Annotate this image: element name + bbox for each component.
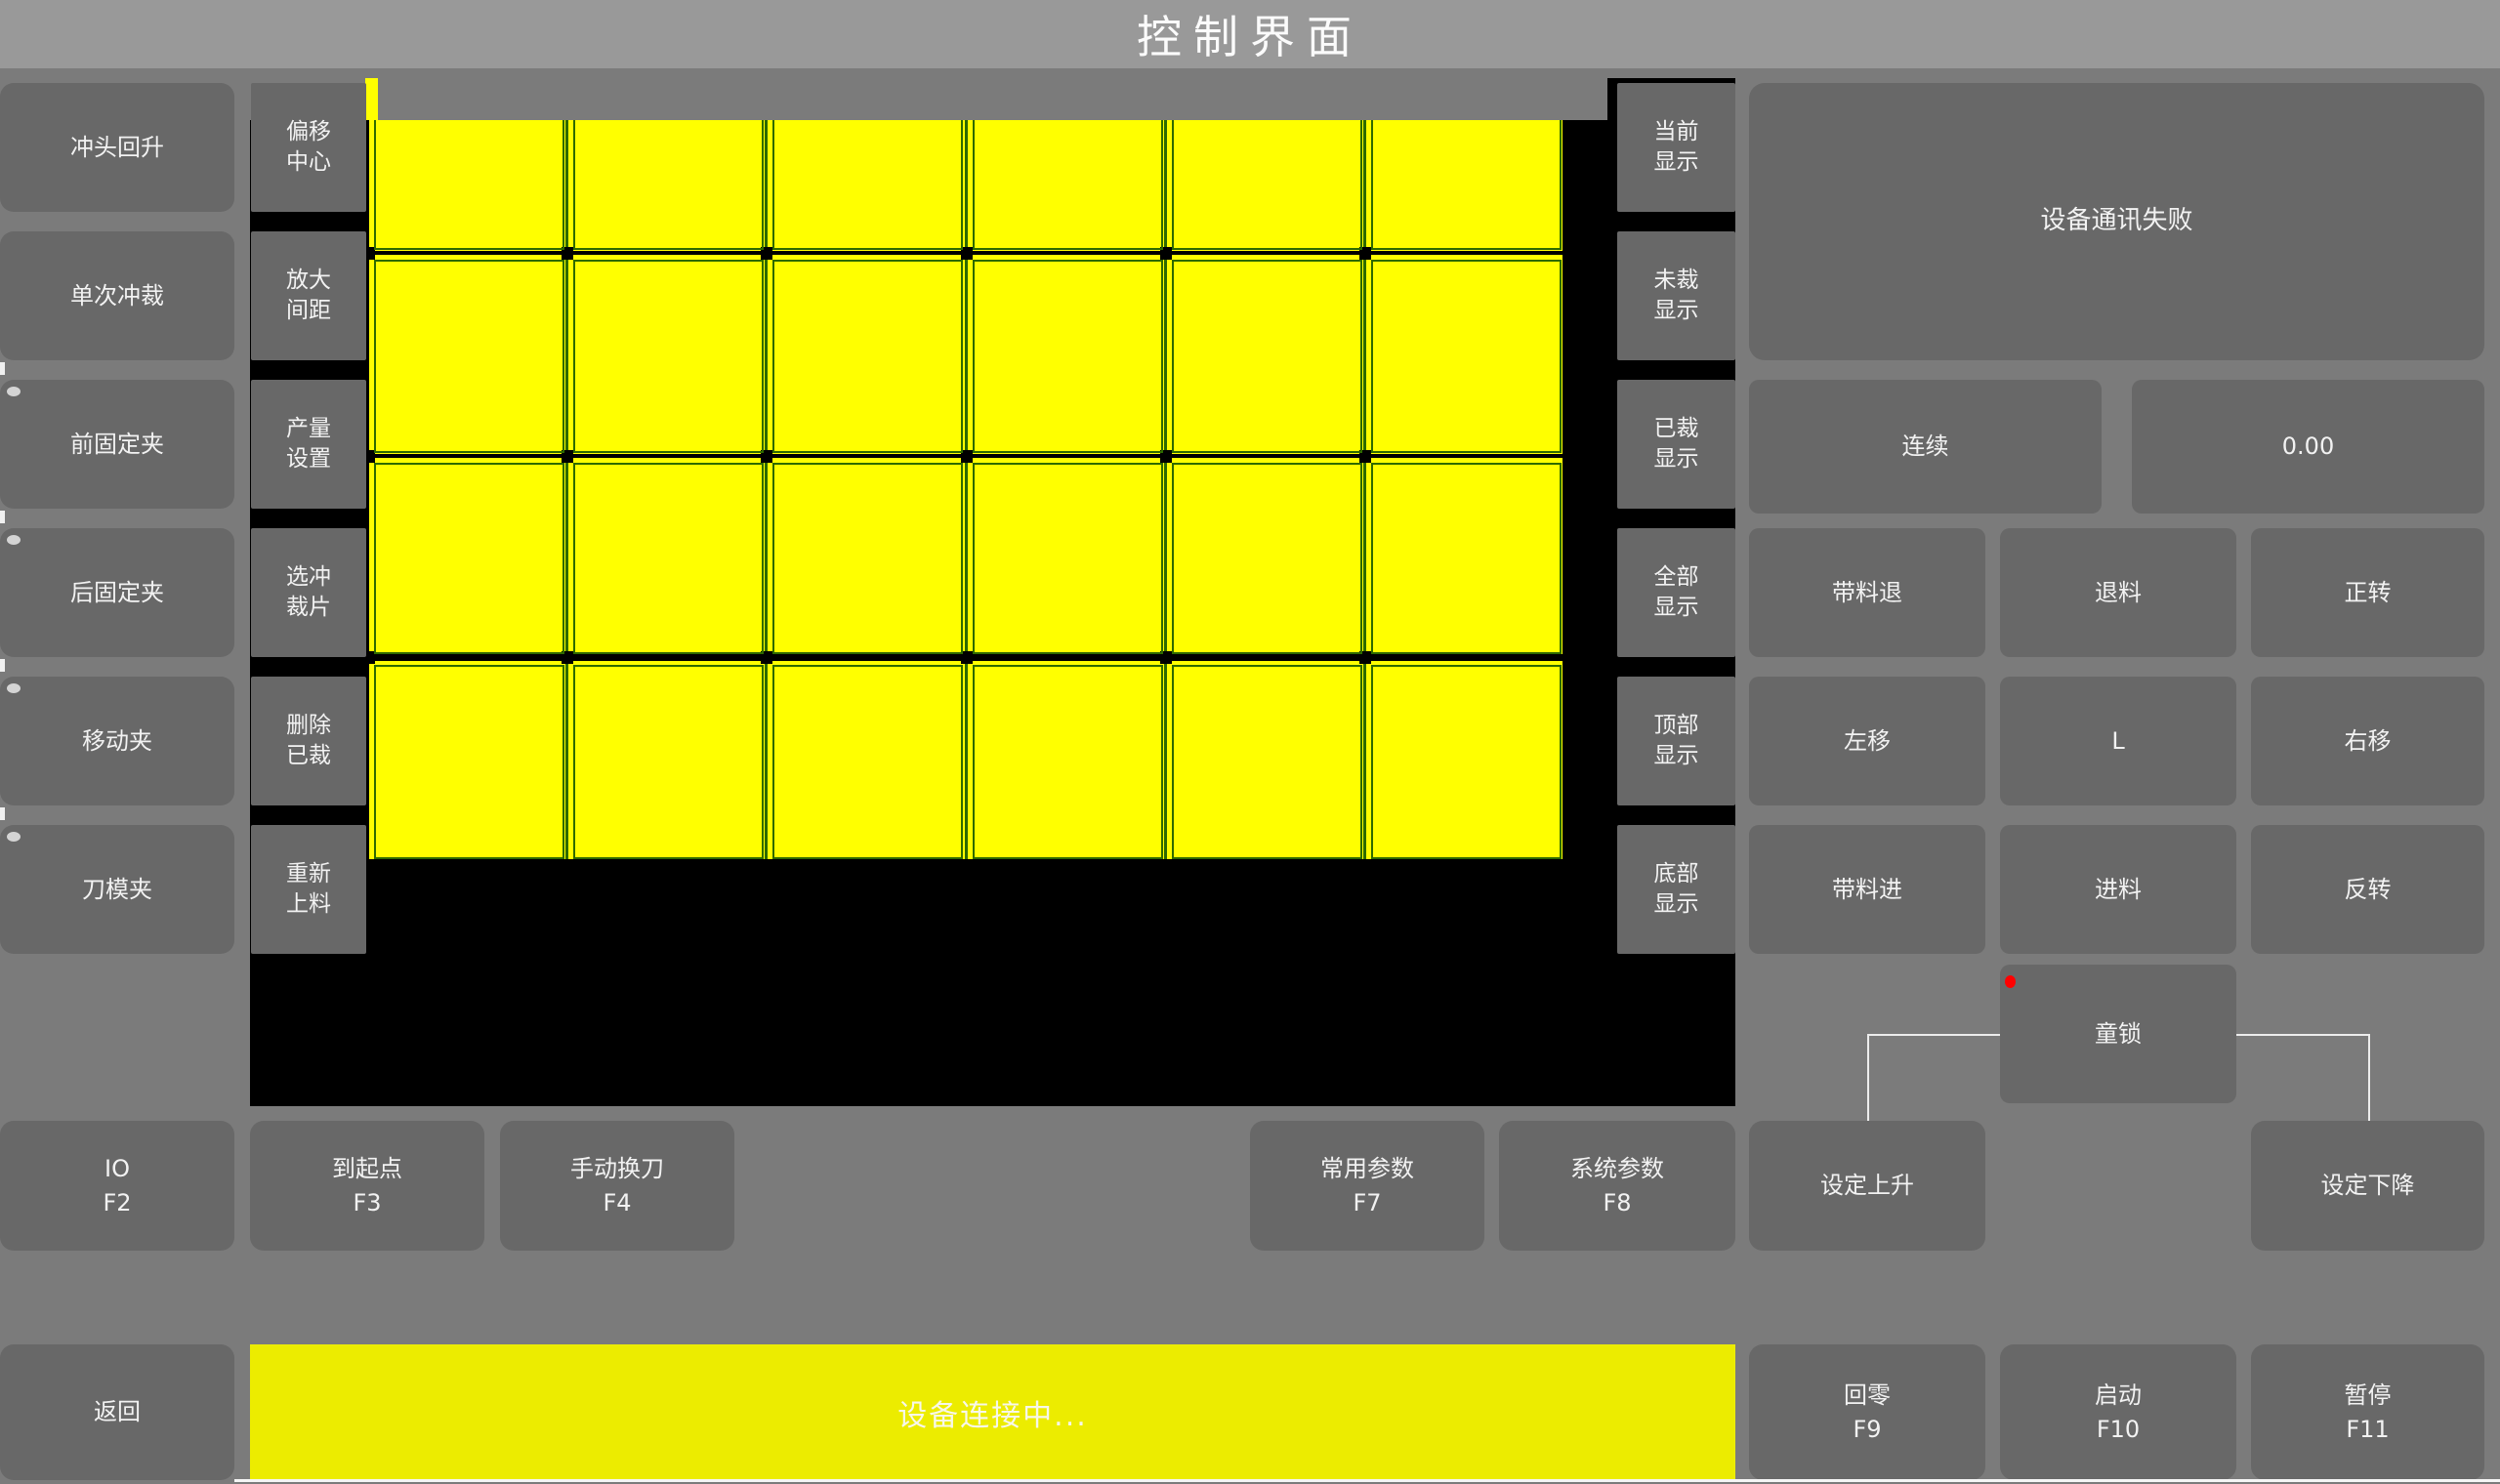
load-button[interactable]: 进料 bbox=[2000, 825, 2236, 954]
page-title: 控制界面 bbox=[1137, 2, 1363, 66]
moving-clamp-button[interactable]: 移动夹 bbox=[0, 677, 234, 805]
grid-vline bbox=[765, 120, 768, 859]
sheet-cell[interactable] bbox=[973, 463, 1163, 654]
die-clamp-button[interactable]: 刀模夹 bbox=[0, 825, 234, 954]
common-params-button[interactable]: 常用参数F7 bbox=[1250, 1121, 1484, 1251]
material-canvas bbox=[250, 78, 1735, 1106]
bracket-line bbox=[2368, 1034, 2370, 1122]
sheet-edge-notch bbox=[365, 78, 378, 120]
sheet-cell[interactable] bbox=[973, 260, 1163, 453]
sheet-cell[interactable] bbox=[1371, 260, 1562, 453]
sheet-cell[interactable] bbox=[1172, 260, 1362, 453]
comm-status-message: 设备通讯失败 bbox=[1749, 83, 2484, 360]
show-cut-button[interactable]: 已裁显示 bbox=[1617, 380, 1735, 509]
sheet-cell[interactable] bbox=[573, 665, 764, 859]
sheet-cell[interactable] bbox=[573, 260, 764, 453]
bracket-line bbox=[2236, 1034, 2368, 1036]
edge-marker bbox=[0, 362, 5, 375]
sheet-cell[interactable] bbox=[1371, 463, 1562, 654]
sheet-cell[interactable] bbox=[374, 120, 564, 250]
forward-rotate-button[interactable]: 正转 bbox=[2251, 528, 2484, 657]
bracket-line bbox=[1867, 1034, 2000, 1036]
sheet-cell[interactable] bbox=[1371, 665, 1562, 859]
punch-raise-button[interactable]: 冲头回升 bbox=[0, 83, 234, 212]
back-button[interactable]: 返回 bbox=[0, 1344, 234, 1480]
bottom-edge-line bbox=[234, 1479, 2500, 1482]
value-display: 0.00 bbox=[2132, 380, 2484, 514]
bracket-line bbox=[1867, 1034, 1869, 1122]
rear-clamp-indicator-icon bbox=[7, 535, 21, 545]
unload-button[interactable]: 退料 bbox=[2000, 528, 2236, 657]
feed-in-button[interactable]: 带料进 bbox=[1749, 825, 1985, 954]
manual-tool-change-button[interactable]: 手动换刀F4 bbox=[500, 1121, 734, 1251]
sheet-cell[interactable] bbox=[973, 665, 1163, 859]
show-uncut-button[interactable]: 未裁显示 bbox=[1617, 231, 1735, 360]
sheet-cell[interactable] bbox=[573, 463, 764, 654]
show-bottom-button[interactable]: 底部显示 bbox=[1617, 825, 1735, 954]
show-top-button[interactable]: 顶部显示 bbox=[1617, 677, 1735, 805]
sheet-cell[interactable] bbox=[973, 120, 1163, 250]
grid-vline bbox=[1363, 120, 1366, 859]
sheet-cell[interactable] bbox=[1172, 665, 1362, 859]
move-right-button[interactable]: 右移 bbox=[2251, 677, 2484, 805]
sheet-cell[interactable] bbox=[374, 463, 564, 654]
title-bar: 控制界面 bbox=[0, 0, 2500, 68]
control-screen: 控制界面 冲头回升 单次冲裁 前固定夹 后固定夹 移动夹 刀模夹 偏移中心 放大… bbox=[0, 0, 2500, 1484]
child-lock-button[interactable]: 童锁 bbox=[2000, 965, 2236, 1103]
home-button[interactable]: 回零F9 bbox=[1749, 1344, 1985, 1480]
canvas-top-strip bbox=[250, 78, 1607, 120]
system-params-button[interactable]: 系统参数F8 bbox=[1499, 1121, 1735, 1251]
set-rise-button[interactable]: 设定上升 bbox=[1749, 1121, 1985, 1251]
reverse-rotate-button[interactable]: 反转 bbox=[2251, 825, 2484, 954]
sheet-cell[interactable] bbox=[573, 120, 764, 250]
show-current-button[interactable]: 当前显示 bbox=[1617, 83, 1735, 212]
continuous-mode-button[interactable]: 连续 bbox=[1749, 380, 2102, 514]
show-all-button[interactable]: 全部显示 bbox=[1617, 528, 1735, 657]
child-lock-indicator-icon bbox=[2005, 975, 2016, 988]
reload-material-button[interactable]: 重新上料 bbox=[251, 825, 366, 954]
sheet-cell[interactable] bbox=[772, 665, 963, 859]
feed-back-button[interactable]: 带料退 bbox=[1749, 528, 1985, 657]
io-button[interactable]: IOF2 bbox=[0, 1121, 234, 1251]
sheet-cell[interactable] bbox=[772, 463, 963, 654]
connection-status-bar: 设备连接中... bbox=[250, 1344, 1735, 1480]
sheet-cell[interactable] bbox=[1371, 120, 1562, 250]
sheet-cell[interactable] bbox=[1172, 463, 1362, 654]
grid-vline bbox=[1164, 120, 1167, 859]
grid-vline bbox=[565, 120, 568, 859]
single-punch-button[interactable]: 单次冲裁 bbox=[0, 231, 234, 360]
grid-vline bbox=[965, 120, 968, 859]
sheet-cell[interactable] bbox=[772, 120, 963, 250]
enlarge-spacing-button[interactable]: 放大间距 bbox=[251, 231, 366, 360]
moving-clamp-indicator-icon bbox=[7, 683, 21, 693]
sheet-cell[interactable] bbox=[374, 260, 564, 453]
sheet-cell[interactable] bbox=[772, 260, 963, 453]
yield-settings-button[interactable]: 产量设置 bbox=[251, 380, 366, 509]
select-piece-button[interactable]: 选冲裁片 bbox=[251, 528, 366, 657]
front-clamp-indicator-icon bbox=[7, 387, 21, 396]
origin-button[interactable]: 到起点F3 bbox=[250, 1121, 484, 1251]
sheet-cell[interactable] bbox=[374, 665, 564, 859]
edge-marker bbox=[0, 807, 5, 820]
die-clamp-indicator-icon bbox=[7, 832, 21, 842]
delete-cut-button[interactable]: 删除已裁 bbox=[251, 677, 366, 805]
start-button[interactable]: 启动F10 bbox=[2000, 1344, 2236, 1480]
edge-marker bbox=[0, 659, 5, 672]
front-clamp-button[interactable]: 前固定夹 bbox=[0, 380, 234, 509]
material-sheet[interactable] bbox=[369, 120, 1562, 859]
sheet-cell[interactable] bbox=[1172, 120, 1362, 250]
move-left-button[interactable]: 左移 bbox=[1749, 677, 1985, 805]
edge-marker bbox=[0, 511, 5, 523]
l-button[interactable]: L bbox=[2000, 677, 2236, 805]
set-fall-button[interactable]: 设定下降 bbox=[2251, 1121, 2484, 1251]
offset-center-button[interactable]: 偏移中心 bbox=[251, 83, 366, 212]
pause-button[interactable]: 暂停F11 bbox=[2251, 1344, 2484, 1480]
rear-clamp-button[interactable]: 后固定夹 bbox=[0, 528, 234, 657]
